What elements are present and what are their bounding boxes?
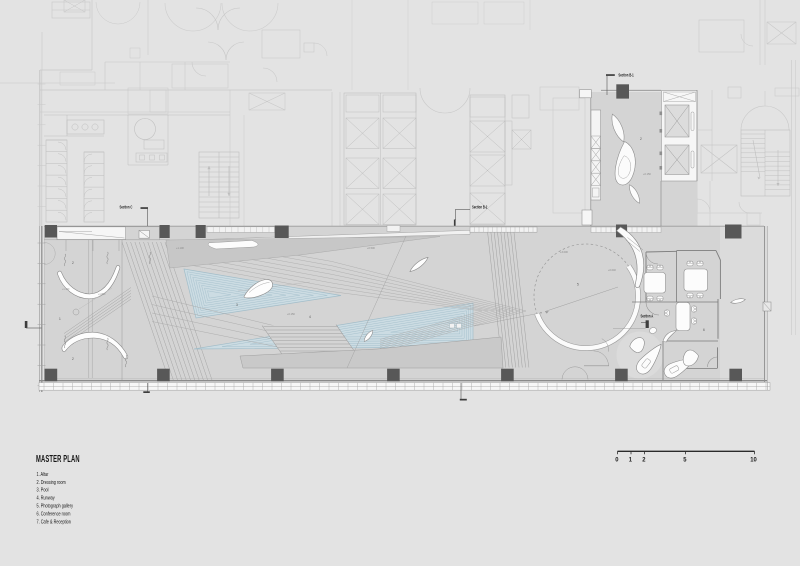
svg-text:2: 2 — [72, 357, 74, 361]
svg-text:1. Altar: 1. Altar — [37, 471, 49, 478]
svg-text:5. Photograph gallery: 5. Photograph gallery — [37, 503, 74, 510]
svg-text:2: 2 — [640, 137, 642, 141]
svg-text:+0.040: +0.040 — [608, 268, 616, 272]
svg-text:0: 0 — [615, 456, 619, 463]
svg-text:+1.150: +1.150 — [62, 287, 70, 291]
svg-text:+0.150: +0.150 — [287, 312, 295, 316]
svg-text:6: 6 — [703, 328, 705, 332]
svg-text:2. Dressing room: 2. Dressing room — [37, 479, 66, 486]
svg-text:4: 4 — [309, 315, 311, 319]
svg-text:Section A: Section A — [641, 314, 654, 319]
svg-text:7. Cafe & Reception: 7. Cafe & Reception — [37, 519, 72, 526]
svg-text:5: 5 — [577, 282, 579, 286]
svg-text:6. Conference room: 6. Conference room — [37, 511, 71, 518]
svg-text:Section C: Section C — [120, 205, 133, 210]
svg-text:4. Runway: 4. Runway — [37, 495, 56, 502]
svg-text:+0.150: +0.150 — [643, 172, 651, 176]
svg-text:1: 1 — [629, 456, 633, 463]
svg-text:10: 10 — [750, 456, 757, 463]
svg-text:3: 3 — [236, 303, 238, 307]
svg-text:+0.500: +0.500 — [367, 246, 375, 250]
svg-text:Section B-2: Section B-2 — [472, 205, 487, 210]
svg-text:2: 2 — [642, 456, 646, 463]
svg-text:MASTER PLAN: MASTER PLAN — [36, 453, 80, 464]
svg-text:2: 2 — [72, 261, 74, 265]
svg-text:1: 1 — [59, 317, 61, 321]
svg-text:5: 5 — [683, 456, 687, 463]
svg-text:3. Pool: 3. Pool — [37, 487, 49, 494]
svg-text:+3.000: +3.000 — [560, 250, 568, 254]
svg-text:+1.100: +1.100 — [176, 246, 184, 250]
svg-text:Section B-1: Section B-1 — [618, 73, 633, 78]
svg-text:+1.600: +1.600 — [98, 292, 106, 296]
